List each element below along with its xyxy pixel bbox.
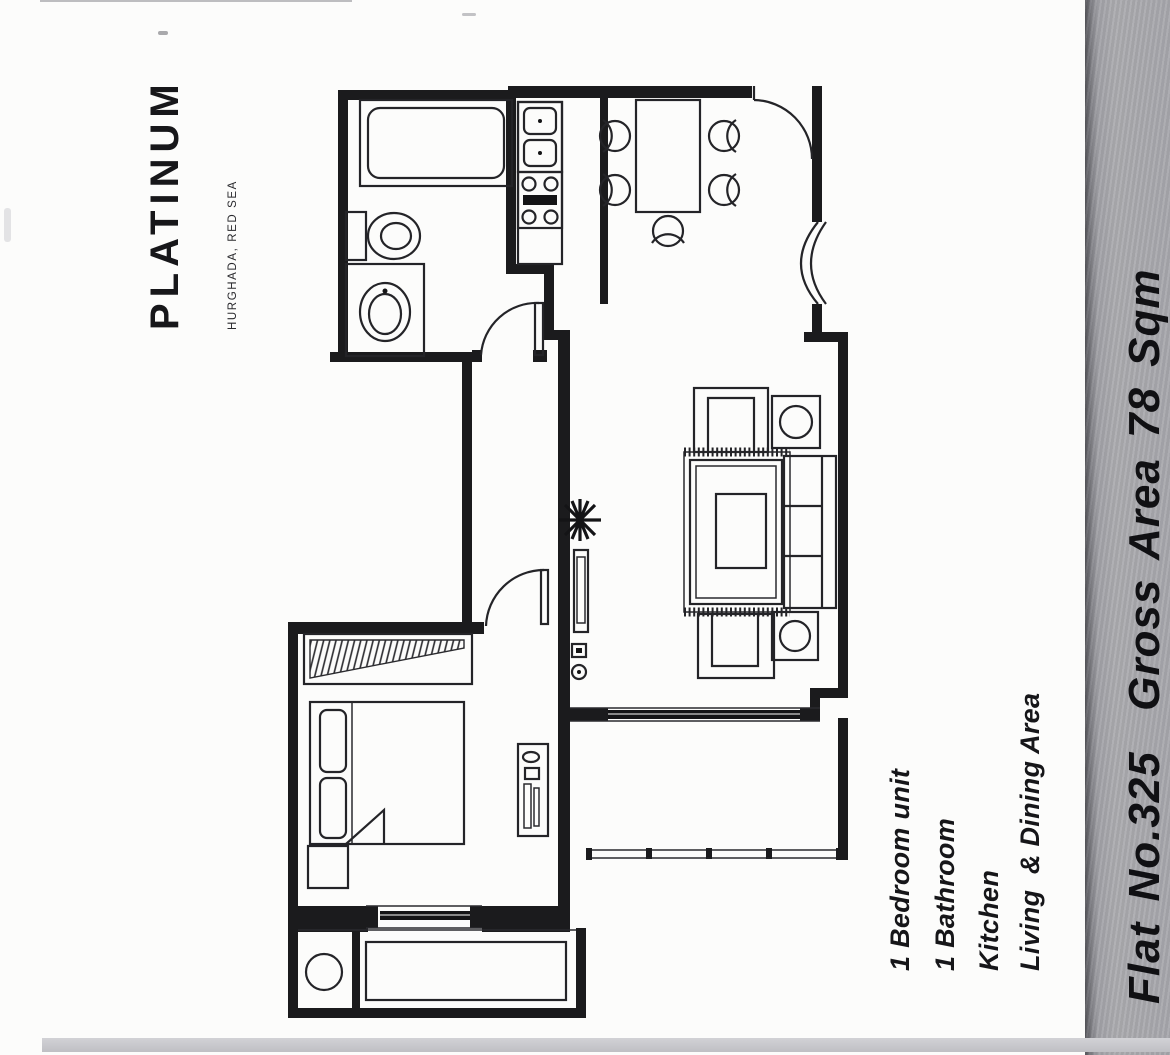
balcony-railing (298, 848, 844, 930)
feature-bedroom-unit: 1 Bedroom unit (884, 769, 916, 971)
entry-door-icon (754, 86, 812, 159)
armchair-icon (698, 614, 774, 678)
potted-plant-icon (559, 499, 601, 541)
bathroom-door-icon (481, 303, 543, 355)
pillow-icon (320, 710, 346, 772)
brand-name: PLATINUM (144, 78, 186, 330)
nightstand-icon (308, 846, 348, 888)
floor-plan (280, 80, 860, 1030)
dresser-icon (518, 744, 548, 836)
brand-logo: PLATINUM HURGHADA, RED SEA (108, 78, 257, 330)
dining-table-icon (636, 100, 700, 212)
flat-info-label: Flat No.325 Gross Area 78 Sqm (1122, 268, 1168, 1004)
balcony-table-icon (306, 954, 342, 990)
bedroom-window (366, 906, 482, 928)
kitchen-sink-icon (518, 102, 562, 172)
brand-location: HURGHADA, RED SEA (227, 78, 239, 330)
scan-artifact-speck (462, 13, 476, 16)
side-table-icon (772, 612, 818, 660)
pillow-icon (320, 778, 346, 838)
rug-icon (684, 452, 790, 612)
scan-artifact-line (40, 0, 352, 2)
arched-window-icon (801, 222, 826, 304)
scan-artifact-speck (158, 31, 168, 35)
feature-kitchen: Kitchen (973, 870, 1005, 971)
wardrobe-hatch-icon (304, 634, 472, 684)
double-bed-icon (310, 702, 464, 844)
dining-chairs (600, 120, 739, 246)
coffee-table-icon (690, 460, 782, 604)
bathtub-icon (360, 100, 512, 186)
planter-icon (366, 942, 566, 1000)
toilet-icon (346, 212, 420, 260)
cooktop-icon (518, 172, 562, 228)
bedroom-door-icon (486, 570, 548, 626)
scanned-floorplan-page: { "logo": { "brand": "PLATINUM", "locati… (0, 0, 1170, 1055)
scan-artifact-smudge (4, 208, 11, 242)
armchair-icon (694, 388, 768, 452)
feature-living-dining: Living & Dining Area (1014, 693, 1046, 971)
sofa-icon (784, 456, 836, 608)
tv-console-icon (572, 550, 588, 679)
feature-bathroom: 1 Bathroom (929, 818, 961, 971)
walls (288, 86, 848, 1018)
bottom-gray-bar (42, 1038, 1170, 1052)
washbasin-icon (346, 264, 424, 356)
side-table-icon (772, 396, 820, 448)
